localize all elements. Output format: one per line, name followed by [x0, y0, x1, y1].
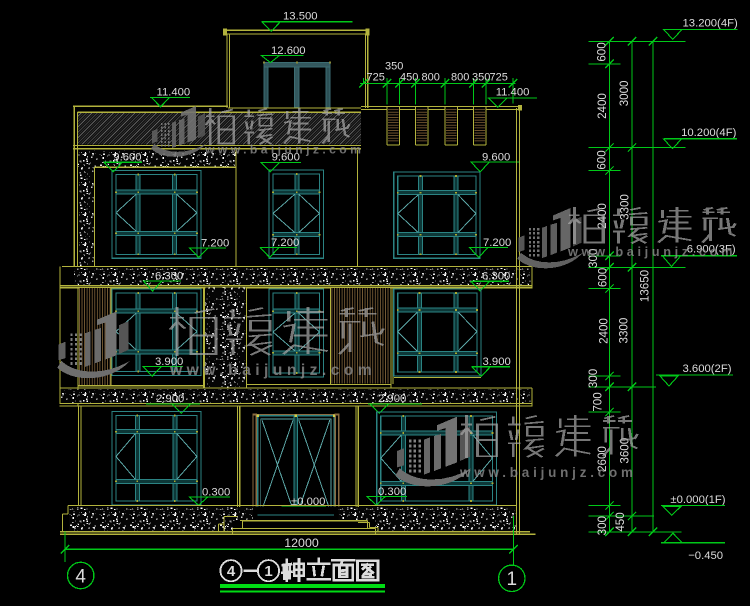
- svg-text:10.200(4F): 10.200(4F): [681, 127, 736, 139]
- svg-text:725: 725: [490, 72, 508, 84]
- svg-text:700: 700: [592, 392, 605, 411]
- svg-text:11.400: 11.400: [496, 86, 530, 98]
- svg-text:3.600(2F): 3.600(2F): [683, 363, 732, 375]
- svg-text:800: 800: [422, 72, 440, 84]
- svg-text:450: 450: [400, 72, 418, 84]
- svg-text:800: 800: [451, 72, 469, 84]
- svg-text:2.900: 2.900: [156, 393, 184, 405]
- svg-text:3600: 3600: [619, 438, 632, 464]
- svg-text:9.600: 9.600: [113, 151, 141, 163]
- svg-text:3300: 3300: [618, 318, 631, 344]
- svg-text:600: 600: [596, 42, 609, 61]
- svg-text:2400: 2400: [596, 93, 609, 119]
- svg-text:3000: 3000: [618, 81, 631, 107]
- svg-text:300: 300: [596, 516, 609, 535]
- svg-text:450: 450: [614, 512, 627, 531]
- svg-text:600: 600: [596, 150, 609, 169]
- svg-text:3300: 3300: [619, 194, 632, 220]
- svg-text:www.baijunjz.com: www.baijunjz.com: [169, 362, 376, 379]
- svg-text:12000: 12000: [284, 536, 319, 550]
- svg-text:725: 725: [367, 72, 385, 84]
- svg-text:4: 4: [227, 563, 236, 580]
- svg-text:2400: 2400: [598, 318, 611, 344]
- svg-text:1: 1: [264, 563, 272, 580]
- svg-text:13.500: 13.500: [283, 10, 318, 22]
- svg-text:300: 300: [587, 369, 600, 388]
- svg-text:1: 1: [507, 569, 518, 590]
- svg-text:13.200(4F): 13.200(4F): [683, 18, 738, 30]
- svg-text:4: 4: [75, 566, 86, 587]
- svg-text:−0.450: −0.450: [688, 550, 723, 562]
- svg-text:www.baijunjz.com: www.baijunjz.com: [204, 143, 364, 157]
- svg-text:2.900: 2.900: [378, 393, 406, 405]
- svg-text:www.baijunjz.com: www.baijunjz.com: [459, 465, 637, 480]
- svg-text:600: 600: [597, 268, 610, 287]
- svg-text:±0.000(1F): ±0.000(1F): [670, 494, 725, 506]
- svg-text:13650: 13650: [639, 270, 652, 302]
- svg-text:350: 350: [472, 72, 490, 84]
- svg-text:11.400: 11.400: [157, 86, 191, 98]
- svg-text:www.baijunjz.com: www.baijunjz.com: [567, 244, 736, 259]
